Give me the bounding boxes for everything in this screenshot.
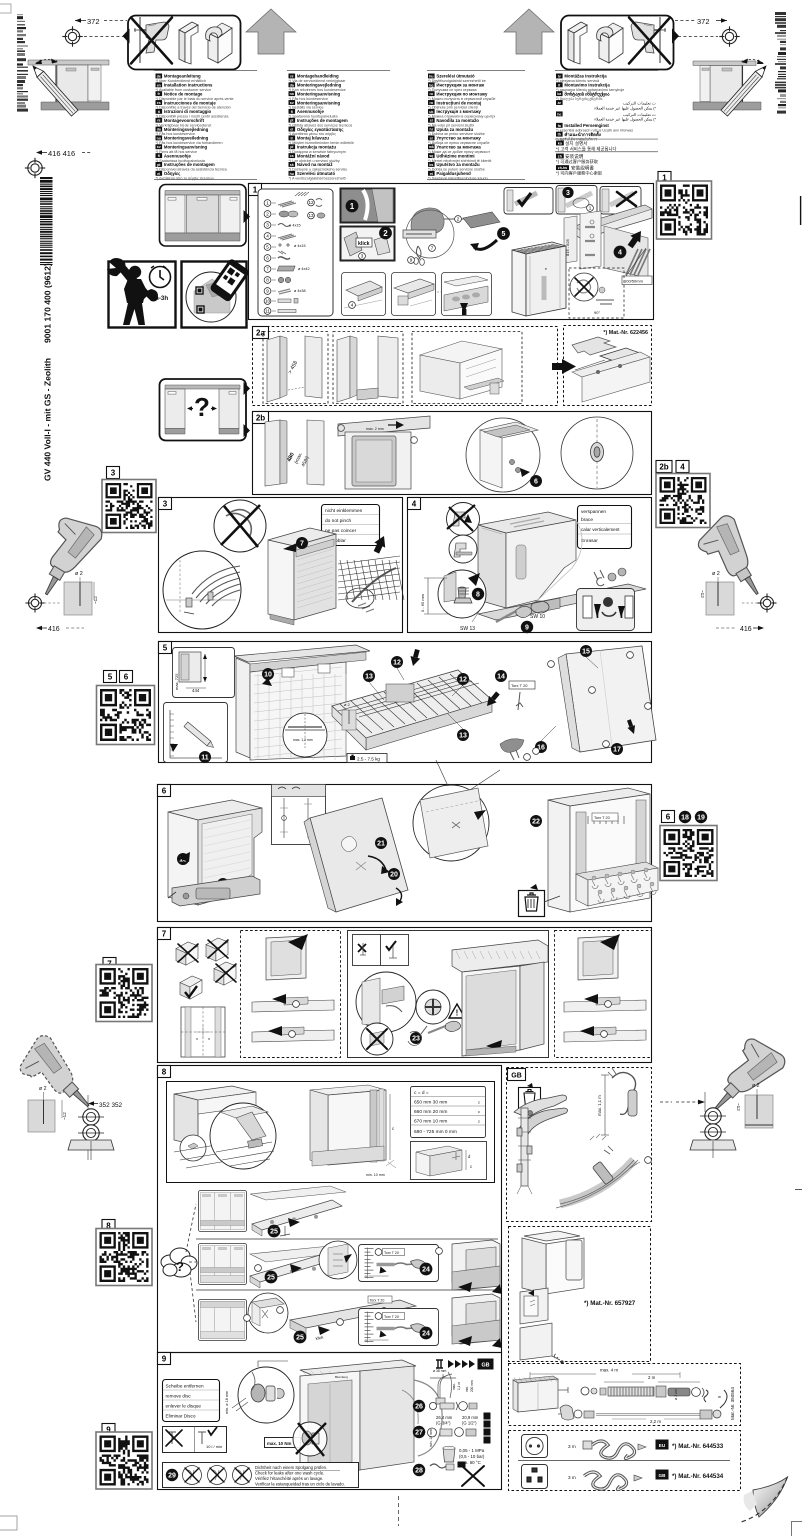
svg-text:9: 9 bbox=[410, 258, 413, 263]
svg-text:~12: ~12 bbox=[62, 1112, 67, 1120]
svg-text:fi: fi bbox=[158, 154, 160, 158]
svg-text:Asennusohje: Asennusohje bbox=[297, 109, 325, 114]
svg-text:Istruzioni di montaggio: Istruzioni di montaggio bbox=[164, 109, 212, 114]
svg-text:th: th bbox=[558, 133, 561, 137]
svg-text:sq: sq bbox=[429, 154, 433, 158]
svg-text:Torx T 20: Torx T 20 bbox=[384, 1315, 399, 1319]
svg-text:~12: ~12 bbox=[700, 590, 705, 598]
svg-text:90°: 90° bbox=[594, 310, 600, 315]
svg-text:Упутство за монтажу: Упутство за монтажу bbox=[436, 136, 481, 141]
svg-text:416 416: 416 416 bbox=[48, 149, 75, 158]
svg-text:25: 25 bbox=[267, 1275, 275, 1282]
svg-text:hr: hr bbox=[430, 128, 434, 132]
svg-text:650 mm 30 mm: 650 mm 30 mm bbox=[414, 1100, 447, 1106]
svg-text:Installation instructions: Installation instructions bbox=[164, 83, 213, 88]
svg-text:ت تعليمات التركيب: ت تعليمات التركيب bbox=[623, 112, 656, 117]
svg-text:sk: sk bbox=[290, 163, 294, 167]
svg-text:7: 7 bbox=[431, 246, 434, 251]
svg-text:zh: zh bbox=[558, 154, 562, 158]
svg-text:min. 10 mm: min. 10 mm bbox=[429, 1429, 433, 1447]
svg-text:6: 6 bbox=[266, 256, 269, 261]
svg-text:29: 29 bbox=[168, 1473, 176, 1480]
svg-text:calar verticalement: calar verticalement bbox=[581, 527, 620, 532]
svg-text:GB: GB bbox=[481, 1363, 489, 1369]
svg-text:sr: sr bbox=[430, 136, 434, 140]
svg-text:3: 3 bbox=[163, 500, 168, 509]
svg-text:Οδηγίες εγκατάστασης: Οδηγίες εγκατάστασης bbox=[297, 127, 344, 132]
svg-text:Instrucţiuni de montaj: Instrucţiuni de montaj bbox=[436, 100, 481, 105]
svg-text:lv: lv bbox=[558, 74, 561, 78]
svg-text:660 mm 20 mm: 660 mm 20 mm bbox=[414, 1109, 447, 1115]
svg-text:Инструкция за монтаж: Инструкция за монтаж bbox=[436, 83, 485, 88]
svg-text:ø 2: ø 2 bbox=[752, 1083, 760, 1089]
svg-text:verspannen: verspannen bbox=[581, 509, 606, 515]
svg-text:Monteringsvejledning: Monteringsvejledning bbox=[297, 83, 342, 88]
svg-text:2: 2 bbox=[383, 229, 388, 238]
svg-text:19: 19 bbox=[697, 815, 705, 822]
svg-text:2,2 m: 2,2 m bbox=[650, 1419, 661, 1424]
svg-text:5: 5 bbox=[502, 231, 506, 238]
svg-text:6: 6 bbox=[666, 813, 671, 822]
svg-text:24: 24 bbox=[422, 1331, 430, 1338]
svg-text:3: 3 bbox=[266, 223, 269, 228]
svg-text:Montageanleitung: Montageanleitung bbox=[164, 74, 201, 79]
svg-text:Инструкция по монтажу: Инструкция по монтажу bbox=[436, 91, 488, 96]
svg-text:20,9 mm: 20,9 mm bbox=[462, 1415, 479, 1420]
svg-text:7: 7 bbox=[266, 267, 269, 272]
svg-text:el: el bbox=[157, 172, 160, 176]
svg-text:25: 25 bbox=[296, 1335, 304, 1342]
svg-text:2 m: 2 m bbox=[648, 1375, 656, 1380]
svg-text:24: 24 bbox=[422, 1267, 430, 1274]
svg-text:Instruções de montagem: Instruções de montagem bbox=[164, 162, 215, 167]
svg-text:4: 4 bbox=[351, 303, 354, 308]
svg-text:Dichtheit nach einem Spülgang: Dichtheit nach einem Spülgang prüfen. bbox=[255, 1465, 327, 1470]
svg-text:Monteringsanvisning: Monteringsanvisning bbox=[297, 91, 341, 96]
svg-text:Udhëzime montimi: Udhëzime montimi bbox=[436, 153, 474, 158]
svg-text:680 - 725 mm 0 mm: 680 - 725 mm 0 mm bbox=[414, 1129, 457, 1135]
svg-text:10 l / min: 10 l / min bbox=[206, 1444, 222, 1449]
svg-text:Montážní návod: Montážní návod bbox=[297, 153, 330, 158]
svg-text:GB: GB bbox=[659, 1473, 667, 1478]
svg-text:0 - 65 mm: 0 - 65 mm bbox=[420, 593, 425, 612]
svg-text:9: 9 bbox=[162, 1355, 167, 1364]
svg-text:Torx T 20: Torx T 20 bbox=[594, 816, 610, 820]
svg-text:Notice de montage: Notice de montage bbox=[164, 91, 203, 96]
svg-text:416: 416 bbox=[48, 626, 60, 633]
svg-text:ru: ru bbox=[430, 92, 434, 96]
svg-text:Montagevoorschrift: Montagevoorschrift bbox=[164, 118, 205, 123]
svg-text:200 mm: 200 mm bbox=[470, 1380, 474, 1392]
svg-text:nl: nl bbox=[157, 119, 160, 123]
svg-text:min. ø 18 mm: min. ø 18 mm bbox=[225, 1391, 229, 1414]
svg-text:Installed Persemginst: Installed Persemginst bbox=[564, 123, 609, 128]
svg-text:nicht einklemmen: nicht einklemmen bbox=[325, 508, 363, 514]
svg-text:ø 2: ø 2 bbox=[75, 571, 83, 577]
svg-text:6: 6 bbox=[534, 479, 538, 486]
svg-text:670 mm 10 mm: 670 mm 10 mm bbox=[414, 1119, 447, 1125]
svg-text:4: 4 bbox=[412, 500, 417, 509]
svg-text:hu: hu bbox=[290, 172, 294, 176]
svg-text:12: 12 bbox=[393, 660, 401, 667]
svg-text:372: 372 bbox=[87, 17, 100, 26]
svg-text:min.: min. bbox=[465, 1386, 469, 1392]
svg-text:4: 4 bbox=[266, 234, 269, 239]
svg-text:remove disc: remove disc bbox=[166, 1394, 192, 1399]
svg-text:3: 3 bbox=[111, 469, 116, 478]
svg-text:*) Mat.-Nr. 644534: *) Mat.-Nr. 644534 bbox=[672, 1473, 724, 1480]
svg-text:100/50mm: 100/50mm bbox=[624, 279, 644, 284]
svg-text:26,4 mm: 26,4 mm bbox=[436, 1415, 453, 1420]
svg-text:bg: bg bbox=[429, 83, 433, 87]
svg-text:ت تعليمات التركيب: ت تعليمات التركيب bbox=[623, 100, 656, 105]
svg-text:352 352: 352 352 bbox=[99, 1102, 123, 1109]
svg-text:!: ! bbox=[456, 1009, 459, 1018]
svg-text:26: 26 bbox=[415, 1404, 423, 1411]
svg-text:Montavimo instrukcija: Montavimo instrukcija bbox=[564, 83, 610, 88]
svg-text:Eliminar Disco: Eliminar Disco bbox=[166, 1414, 196, 1419]
svg-text:SW 10: SW 10 bbox=[530, 614, 545, 620]
svg-text:ø 2: ø 2 bbox=[344, 702, 351, 707]
svg-text:Monteringsanvisning: Monteringsanvisning bbox=[164, 145, 208, 150]
svg-text:2: 2 bbox=[457, 217, 460, 222]
svg-text:Asennusohje: Asennusohje bbox=[164, 153, 192, 158]
svg-text:x: x bbox=[208, 1036, 210, 1041]
svg-text:*) Mat.-Nr. 657927: *) Mat.-Nr. 657927 bbox=[584, 1300, 636, 1307]
svg-text:nl: nl bbox=[290, 74, 293, 78]
svg-text:14: 14 bbox=[497, 674, 505, 681]
svg-text:(G 3/4"): (G 3/4") bbox=[436, 1421, 451, 1426]
svg-text:11: 11 bbox=[201, 755, 209, 762]
svg-text:Verificar la estanqueidad tras: Verificar la estanqueidad tras un ciclo … bbox=[255, 1482, 345, 1487]
svg-text:sl: sl bbox=[430, 119, 433, 123]
svg-text:*) მიიღება სერვისცენტრში: *) მიიღება სერვისცენტრში bbox=[556, 96, 603, 101]
svg-text:en: en bbox=[157, 83, 161, 87]
svg-text:416: 416 bbox=[740, 626, 752, 633]
svg-text:12: 12 bbox=[459, 677, 467, 684]
svg-text:ø 2: ø 2 bbox=[39, 1086, 47, 1092]
svg-text:يمكن الحصول عليها عبر خدمة الع: يمكن الحصول عليها عبر خدمة العملاء (* bbox=[594, 117, 656, 122]
svg-text:1: 1 bbox=[253, 186, 258, 195]
svg-text:Οδηγίες: Οδηγίες bbox=[164, 171, 181, 176]
svg-text:6: 6 bbox=[162, 787, 167, 796]
svg-text:pl: pl bbox=[290, 145, 293, 149]
svg-text:11: 11 bbox=[265, 309, 270, 314]
svg-text:(G 1/2"): (G 1/2") bbox=[462, 1421, 477, 1426]
svg-text:1: 1 bbox=[266, 201, 269, 206]
svg-text:Torx T 20: Torx T 20 bbox=[370, 1298, 385, 1302]
svg-text:18: 18 bbox=[681, 815, 689, 822]
svg-text:ø 4x42: ø 4x42 bbox=[298, 267, 310, 271]
svg-text:SW 13: SW 13 bbox=[460, 626, 475, 632]
svg-text:do not pinch: do not pinch bbox=[325, 518, 351, 524]
svg-text:Montaj kılavuzu: Montaj kılavuzu bbox=[297, 136, 329, 141]
svg-text:ø 4x38: ø 4x38 bbox=[294, 289, 306, 293]
svg-text:Instrucciones de montaje: Instrucciones de montaje bbox=[164, 100, 216, 105]
svg-text:(0,5 - 10 bar): (0,5 - 10 bar) bbox=[459, 1454, 485, 1459]
svg-text:9001 170 400 (9612): 9001 170 400 (9612) bbox=[43, 263, 53, 343]
svg-text:Paigaldusjuhend: Paigaldusjuhend bbox=[436, 171, 471, 176]
svg-text:10: 10 bbox=[265, 299, 271, 304]
svg-text:~2h-3h: ~2h-3h bbox=[148, 295, 168, 302]
svg-text:?: ? bbox=[194, 392, 210, 422]
svg-text:max.: max. bbox=[452, 1383, 456, 1390]
svg-text:c: c bbox=[478, 1109, 480, 1114]
svg-text:ø 2 cm: ø 2 cm bbox=[674, 1389, 678, 1400]
svg-text:he: he bbox=[557, 112, 561, 116]
svg-text:Monteringsveiledning: Monteringsveiledning bbox=[164, 136, 209, 141]
svg-text:ø 4x15: ø 4x15 bbox=[294, 244, 306, 248]
svg-text:7: 7 bbox=[162, 930, 167, 939]
svg-text:12: 12 bbox=[308, 200, 314, 205]
svg-text:28: 28 bbox=[415, 1468, 423, 1475]
svg-text:*) 可通过客户服务获取: *) 可通过客户服务获取 bbox=[556, 158, 599, 165]
svg-text:21: 21 bbox=[377, 841, 385, 848]
svg-text:*) Mat.-Nr. 622456: *) Mat.-Nr. 622456 bbox=[603, 330, 648, 336]
svg-text:Інструкція з монтажу: Інструкція з монтажу bbox=[436, 109, 481, 114]
svg-text:~12: ~12 bbox=[736, 1103, 741, 1111]
svg-text:يمكن الحصول عليها عبر خدمة الع: يمكن الحصول عليها عبر خدمة العملاء (* bbox=[594, 105, 656, 110]
svg-text:max. 4 m: max. 4 m bbox=[600, 1368, 618, 1373]
svg-text:23: 23 bbox=[412, 1036, 420, 1043]
svg-text:c: c bbox=[478, 1119, 480, 1124]
svg-text:8: 8 bbox=[476, 592, 480, 599]
svg-text:cs: cs bbox=[290, 154, 294, 158]
svg-text:zh-tw: zh-tw bbox=[558, 166, 567, 170]
svg-text:Mat.-Nr. 350564: Mat.-Nr. 350564 bbox=[730, 1387, 735, 1420]
svg-text:1,1 m: 1,1 m bbox=[457, 1382, 461, 1390]
svg-text:3 m: 3 m bbox=[568, 1444, 576, 1449]
svg-text:?: ? bbox=[176, 1259, 184, 1274]
svg-text:GV 440 Voll-I - mit GS - Zeoli: GV 440 Voll-I - mit GS - Zeolith bbox=[43, 358, 53, 481]
svg-text:7: 7 bbox=[300, 541, 304, 548]
svg-text:max. 1,1 m: max. 1,1 m bbox=[597, 1095, 602, 1116]
svg-text:10: 10 bbox=[264, 672, 272, 679]
svg-text:min. 10 mm: min. 10 mm bbox=[366, 1173, 385, 1177]
svg-text:3 m: 3 m bbox=[568, 1475, 576, 1480]
svg-text:Instrukcja montażu: Instrukcja montażu bbox=[297, 145, 337, 150]
svg-text:max. 1,2 mm: max. 1,2 mm bbox=[293, 738, 313, 742]
svg-text:e: e bbox=[545, 267, 547, 271]
svg-text:es: es bbox=[157, 101, 161, 105]
svg-text:Instruções de montagem: Instruções de montagem bbox=[297, 118, 348, 123]
svg-text:w: w bbox=[718, 1394, 721, 1399]
svg-text:3: 3 bbox=[566, 190, 570, 197]
svg-text:Monteringsanvisning: Monteringsanvisning bbox=[297, 100, 341, 105]
svg-text:*) Mat.-Nr. 644533: *) Mat.-Nr. 644533 bbox=[672, 1443, 724, 1450]
svg-text:17: 17 bbox=[613, 747, 621, 754]
svg-text:8: 8 bbox=[162, 1068, 167, 1077]
svg-text:enlever le disque: enlever le disque bbox=[166, 1404, 202, 1409]
svg-text:uk: uk bbox=[429, 110, 433, 114]
svg-text:Check for leaks after one wash: Check for leaks after one wash cycle. bbox=[255, 1471, 324, 1476]
svg-text:9: 9 bbox=[266, 289, 269, 294]
svg-text:el: el bbox=[290, 128, 293, 132]
svg-text:20: 20 bbox=[390, 872, 398, 879]
svg-text:2a: 2a bbox=[256, 329, 265, 338]
svg-text:25: 25 bbox=[270, 1229, 278, 1236]
svg-text:15: 15 bbox=[582, 649, 590, 656]
svg-text:5: 5 bbox=[163, 644, 168, 653]
svg-text:Montāžas instrukcija: Montāžas instrukcija bbox=[564, 74, 607, 79]
svg-text:6: 6 bbox=[124, 673, 129, 682]
svg-text:c = d =: c = d = bbox=[414, 1090, 429, 1096]
svg-text:2b: 2b bbox=[256, 414, 265, 423]
svg-text:13: 13 bbox=[459, 733, 467, 740]
svg-text:Szerelési útmutató: Szerelési útmutató bbox=[436, 74, 475, 79]
svg-text:1: 1 bbox=[350, 202, 355, 211]
svg-text:c: c bbox=[478, 1100, 480, 1105]
svg-text:0,05 - 1 MPa: 0,05 - 1 MPa bbox=[459, 1448, 485, 1453]
svg-text:444: 444 bbox=[192, 688, 200, 693]
svg-text:de: de bbox=[157, 74, 161, 78]
svg-text:hu: hu bbox=[429, 74, 433, 78]
svg-text:1: 1 bbox=[589, 206, 592, 211]
svg-text:max. 10 Nm: max. 10 Nm bbox=[267, 1441, 292, 1446]
svg-text:2b: 2b bbox=[659, 463, 668, 472]
svg-text:Enrasar: Enrasar bbox=[581, 538, 598, 544]
svg-text:8: 8 bbox=[266, 278, 269, 283]
svg-text:27: 27 bbox=[415, 1430, 423, 1437]
svg-text:mk: mk bbox=[429, 145, 434, 149]
svg-text:GB: GB bbox=[511, 1073, 522, 1080]
svg-text:5: 5 bbox=[266, 245, 269, 250]
svg-text:13: 13 bbox=[365, 674, 373, 681]
svg-text:Uputa za montažu: Uputa za montažu bbox=[436, 127, 473, 132]
svg-text:Vérifiez l'étanchéité après un: Vérifiez l'étanchéité après un lavage. bbox=[255, 1476, 323, 1481]
svg-text:Návod na montáž: Návod na montáž bbox=[297, 162, 333, 167]
svg-text:4: 4 bbox=[680, 463, 685, 472]
svg-text:Uputstvo za montažu: Uputstvo za montažu bbox=[436, 162, 480, 167]
svg-text:x: x bbox=[196, 1036, 198, 1041]
svg-text:max. 725: max. 725 bbox=[174, 673, 179, 690]
svg-text:klick: klick bbox=[358, 241, 370, 247]
svg-text:*) A vevőszolgálatnál beszerez: *) A vevőszolgálatnál beszerezhető bbox=[289, 176, 346, 180]
svg-text:sv: sv bbox=[290, 101, 294, 105]
svg-text:brace: brace bbox=[581, 517, 593, 523]
svg-text:Szerelési útmutató: Szerelési útmutató bbox=[297, 171, 336, 176]
svg-text:Blomberg: Blomberg bbox=[335, 1375, 348, 1379]
svg-text:ø 4x15: ø 4x15 bbox=[289, 224, 301, 228]
svg-text:9: 9 bbox=[525, 625, 529, 632]
svg-text:คำแนะนำการติดตั้ง: คำแนะนำการติดตั้ง bbox=[564, 130, 600, 137]
svg-text:2.5 - 7.5 kg: 2.5 - 7.5 kg bbox=[357, 757, 380, 762]
svg-text:Navodila za montažo: Navodila za montažo bbox=[436, 118, 479, 123]
svg-text:Monteringsvejledning: Monteringsvejledning bbox=[164, 127, 209, 132]
svg-text:13: 13 bbox=[308, 213, 314, 218]
svg-text:max. 2 mm: max. 2 mm bbox=[366, 427, 384, 431]
svg-text:3: 3 bbox=[361, 254, 364, 259]
svg-text:*) 可向客戶服務中心索取: *) 可向客戶服務中心索取 bbox=[556, 170, 603, 177]
svg-text:4: 4 bbox=[618, 250, 622, 257]
svg-text:2: 2 bbox=[266, 212, 269, 217]
svg-text:Torx T 20: Torx T 20 bbox=[384, 1251, 399, 1255]
svg-text:Упатство за монтажа: Упатство за монтажа bbox=[436, 145, 481, 150]
svg-text:Scheibe entfernen: Scheibe entfernen bbox=[166, 1384, 204, 1389]
svg-text:ø 38 mm: ø 38 mm bbox=[433, 1369, 447, 1373]
svg-text:Torx T 20: Torx T 20 bbox=[511, 683, 528, 688]
svg-text:fi: fi bbox=[291, 110, 293, 114]
svg-text:5: 5 bbox=[108, 673, 113, 682]
svg-text:bs: bs bbox=[429, 163, 433, 167]
svg-text:c: c bbox=[470, 1164, 472, 1169]
svg-text:EU: EU bbox=[659, 1443, 666, 1448]
svg-text:ar: ar bbox=[558, 101, 562, 105]
svg-text:372: 372 bbox=[697, 17, 710, 26]
svg-text:sv: sv bbox=[157, 145, 161, 149]
svg-text:Montagehandleiding: Montagehandleiding bbox=[297, 74, 339, 79]
svg-text:22: 22 bbox=[532, 819, 540, 826]
svg-text:ø 2: ø 2 bbox=[712, 571, 720, 577]
